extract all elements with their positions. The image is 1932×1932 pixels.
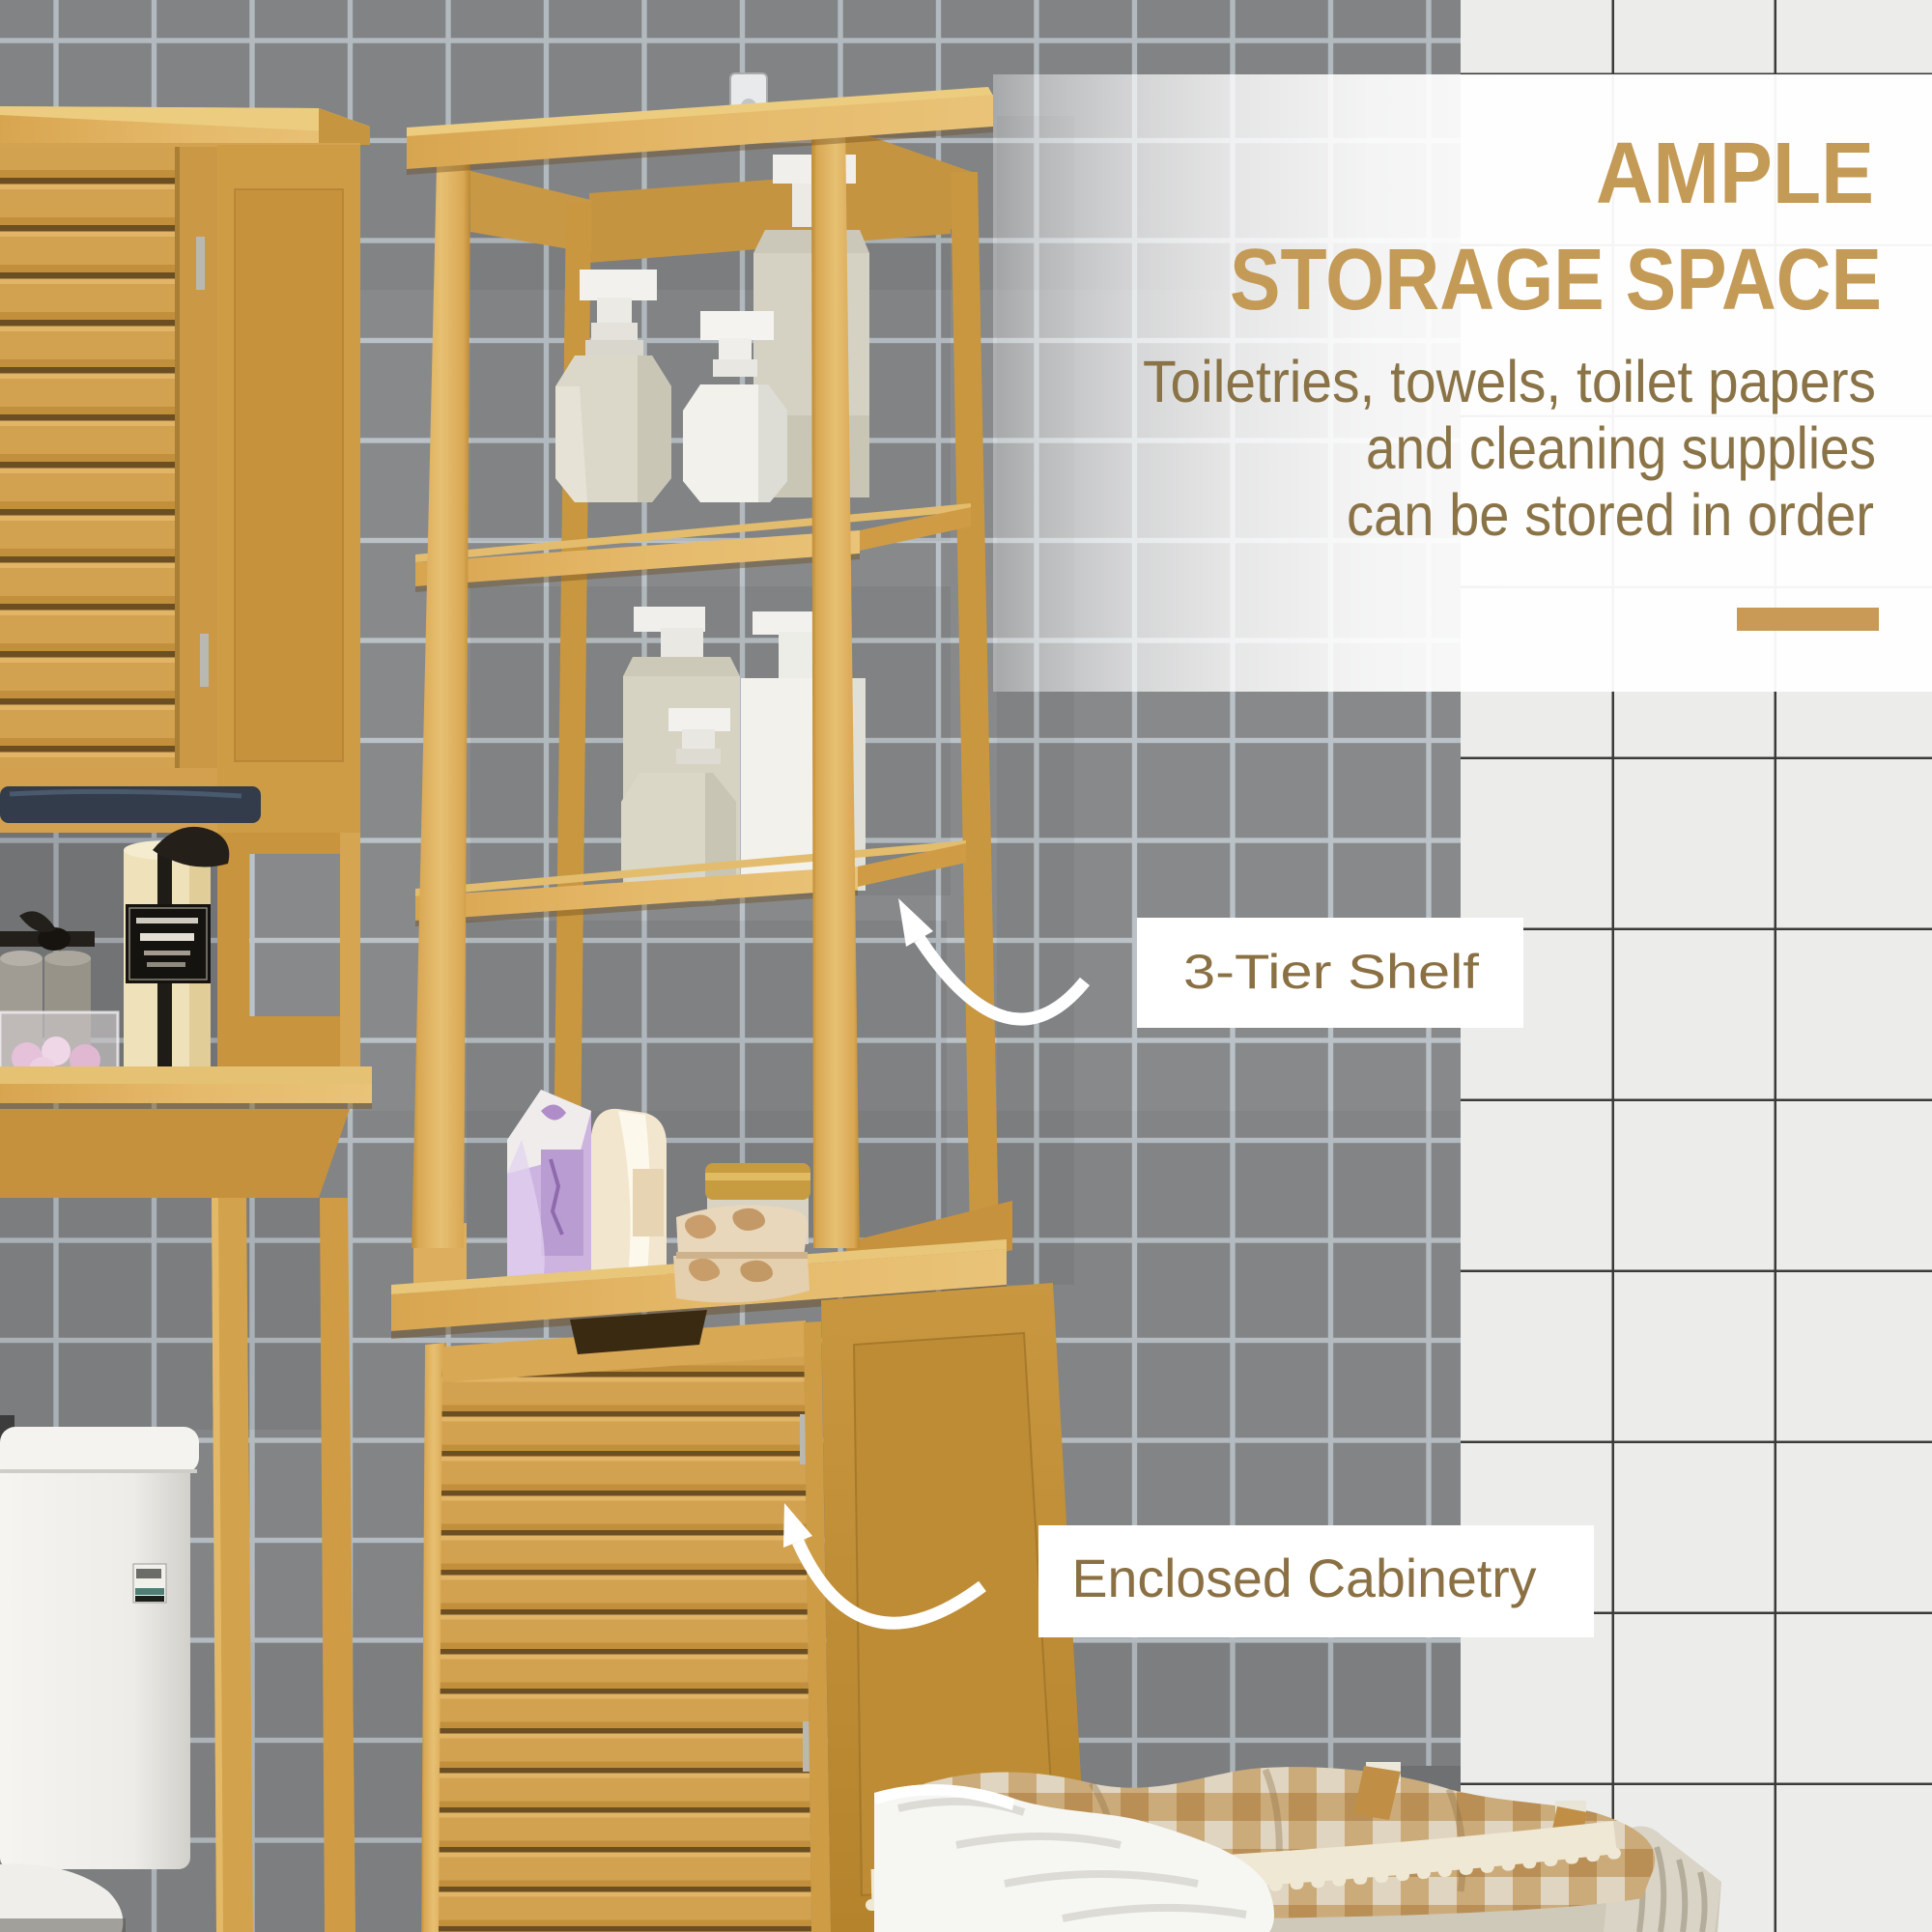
svg-text:Enclosed Cabinetry: Enclosed Cabinetry (1072, 1548, 1537, 1608)
svg-text:3-Tier Shelf: 3-Tier Shelf (1183, 945, 1479, 999)
svg-text:can be stored in order: can be stored in order (1347, 482, 1874, 548)
svg-text:STORAGE SPACE: STORAGE SPACE (1230, 232, 1882, 328)
svg-text:AMPLE: AMPLE (1596, 126, 1874, 222)
svg-text:Toiletries, towels, toilet pap: Toiletries, towels, toilet papers (1143, 349, 1876, 414)
svg-text:and cleaning supplies: and cleaning supplies (1366, 415, 1876, 481)
